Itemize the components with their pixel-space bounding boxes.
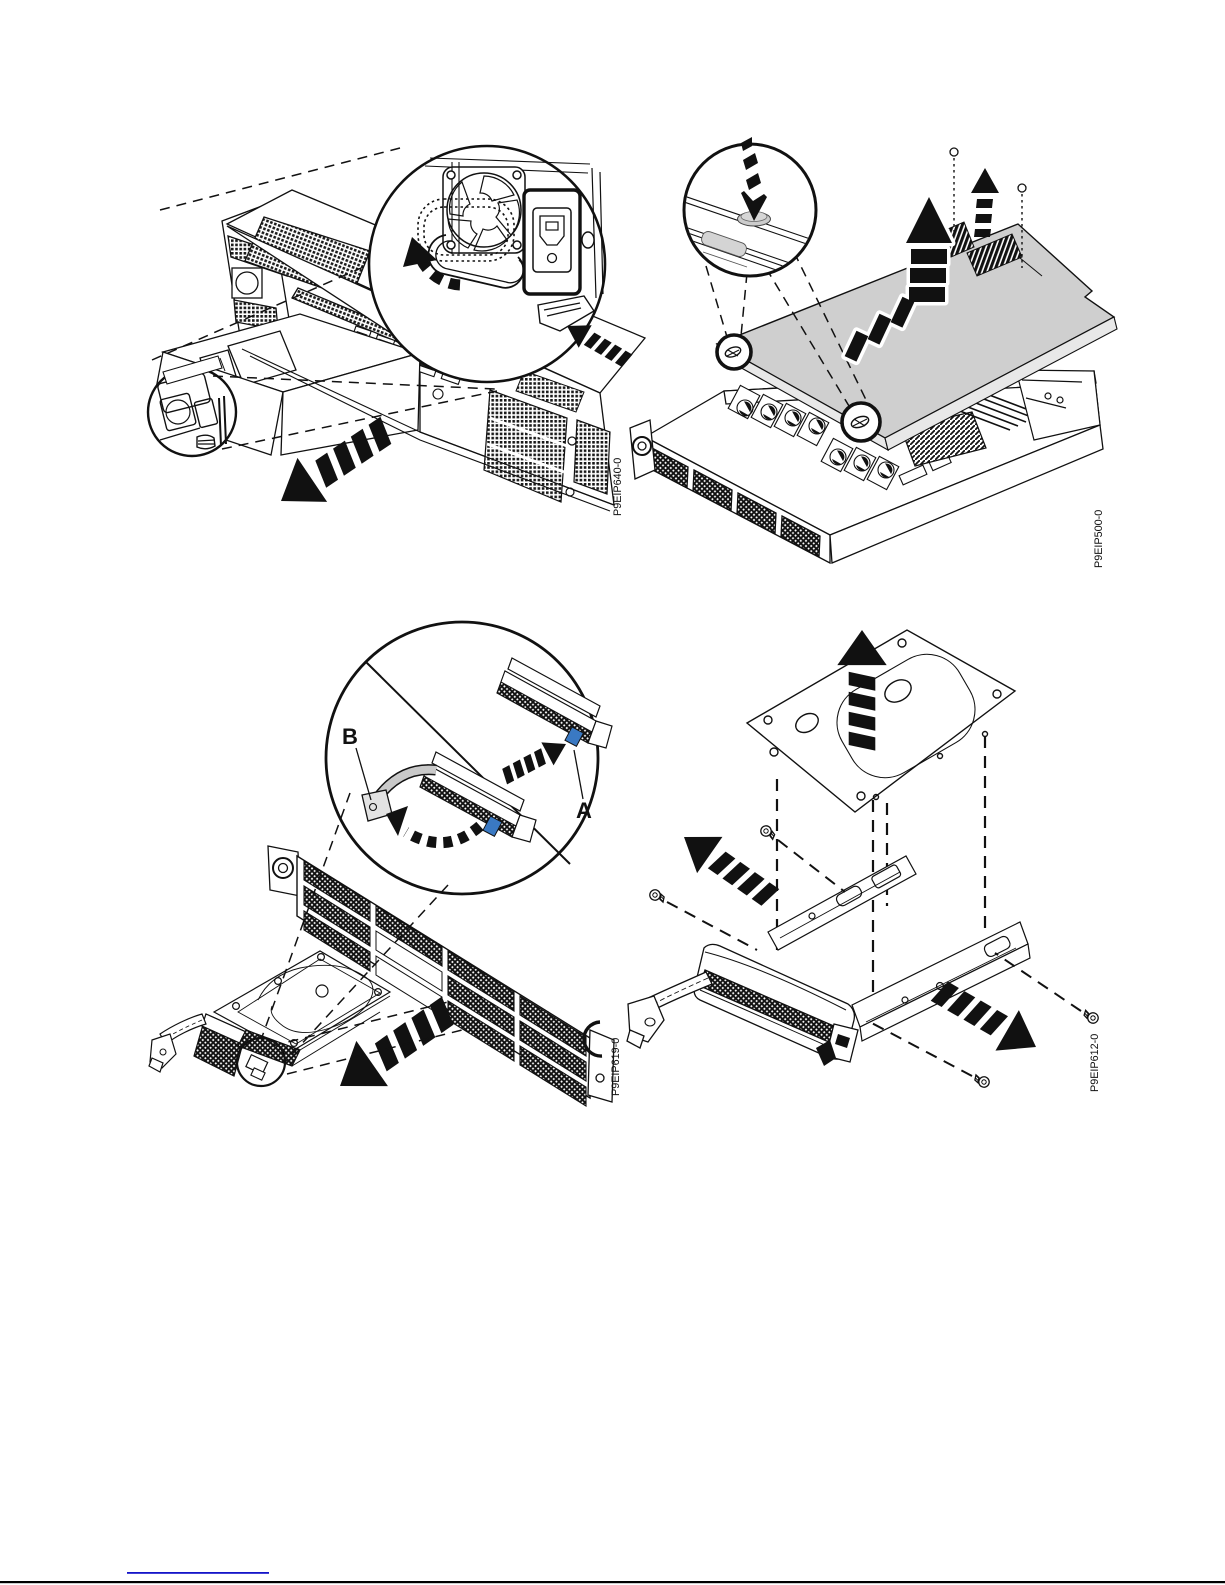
svg-text:B: B	[342, 724, 358, 749]
svg-text:P9EIP619-0: P9EIP619-0	[610, 1038, 622, 1096]
svg-text:P9EIP612-0: P9EIP612-0	[1089, 1034, 1101, 1092]
svg-text:A: A	[576, 798, 592, 823]
svg-text:P9EIP500-0: P9EIP500-0	[1093, 510, 1105, 568]
svg-text:P9EIP640-0: P9EIP640-0	[612, 458, 624, 516]
